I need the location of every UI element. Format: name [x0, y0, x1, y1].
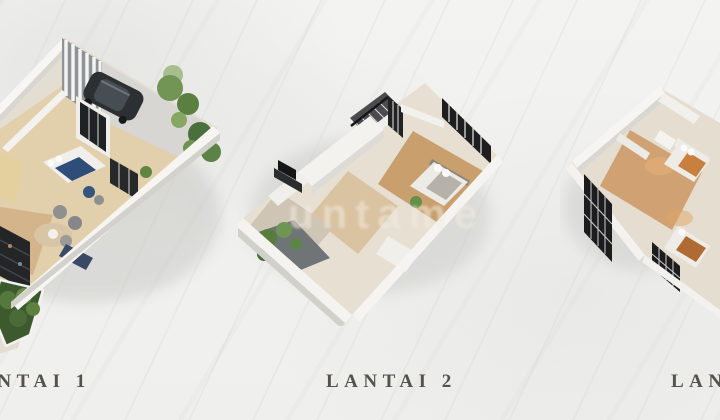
- potted-plant: [140, 166, 152, 178]
- watermark: untame: [288, 190, 485, 238]
- floor-label-lantai-2: LANTAI 2: [326, 371, 457, 393]
- warm-light-glow: [667, 210, 693, 226]
- floor-plans-showcase: untame LANTAI 1 LANTAI 2 LANTAI 3: [0, 0, 720, 420]
- floor-plan-3-illustration: [560, 78, 720, 318]
- floor-plan-1-illustration: [0, 30, 228, 360]
- floor-label-lantai-1: LANTAI 1: [0, 371, 91, 393]
- floor-label-lantai-3: LANTAI 3: [671, 371, 720, 393]
